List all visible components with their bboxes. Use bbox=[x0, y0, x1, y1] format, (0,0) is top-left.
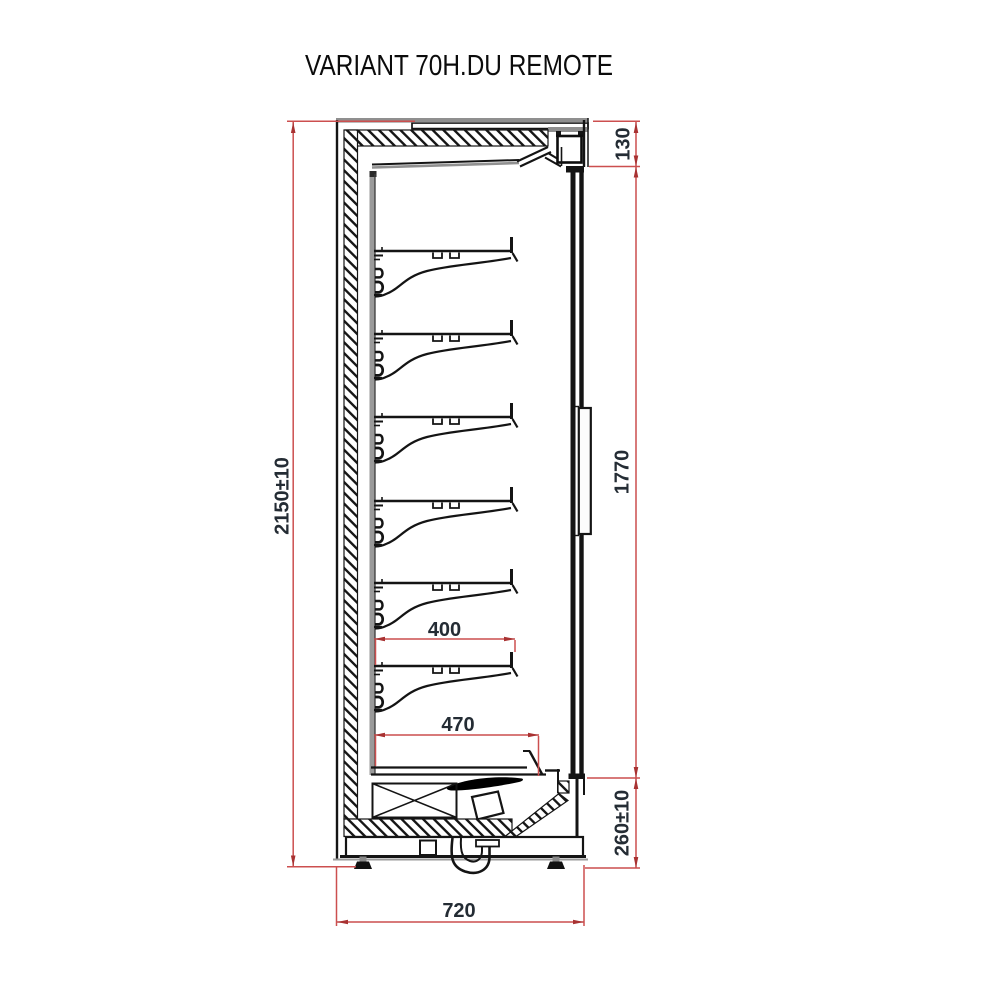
svg-text:400: 400 bbox=[428, 619, 461, 641]
svg-text:470: 470 bbox=[441, 714, 474, 736]
svg-text:130: 130 bbox=[612, 127, 634, 160]
svg-text:1770: 1770 bbox=[611, 450, 633, 495]
svg-text:2150±10: 2150±10 bbox=[271, 457, 293, 535]
svg-text:720: 720 bbox=[442, 900, 475, 922]
svg-text:260±10: 260±10 bbox=[611, 790, 633, 857]
svg-text:VARIANT 70H.DU REMOTE: VARIANT 70H.DU REMOTE bbox=[305, 50, 613, 82]
